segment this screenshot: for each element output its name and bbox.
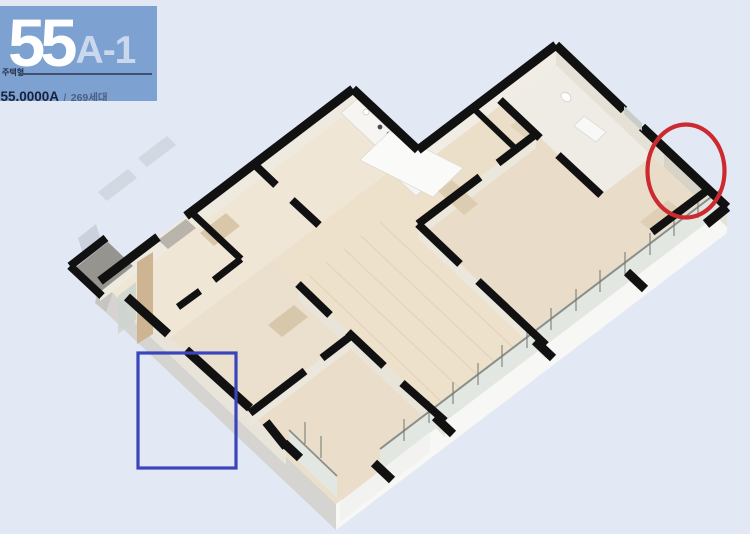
unit-number: 55: [8, 14, 73, 74]
cooktop-burner: [378, 125, 383, 130]
unit-title: 55A-1: [8, 14, 135, 74]
kitchen-sink: [363, 109, 369, 115]
type-rule-line: [19, 73, 152, 75]
household-count: 269세대: [71, 92, 108, 101]
spec-separator: /: [64, 93, 67, 101]
unit-variant: A-1: [76, 28, 136, 74]
unit-label-card: 55A-1 주택형 055.0000A / 269세대: [0, 6, 157, 101]
screenshot-stage: 55A-1 주택형 055.0000A / 269세대: [0, 0, 750, 534]
spec-line: 055.0000A / 269세대: [0, 88, 108, 101]
area-code: 055.0000A: [0, 89, 59, 101]
entry-cabinet: [137, 252, 153, 344]
